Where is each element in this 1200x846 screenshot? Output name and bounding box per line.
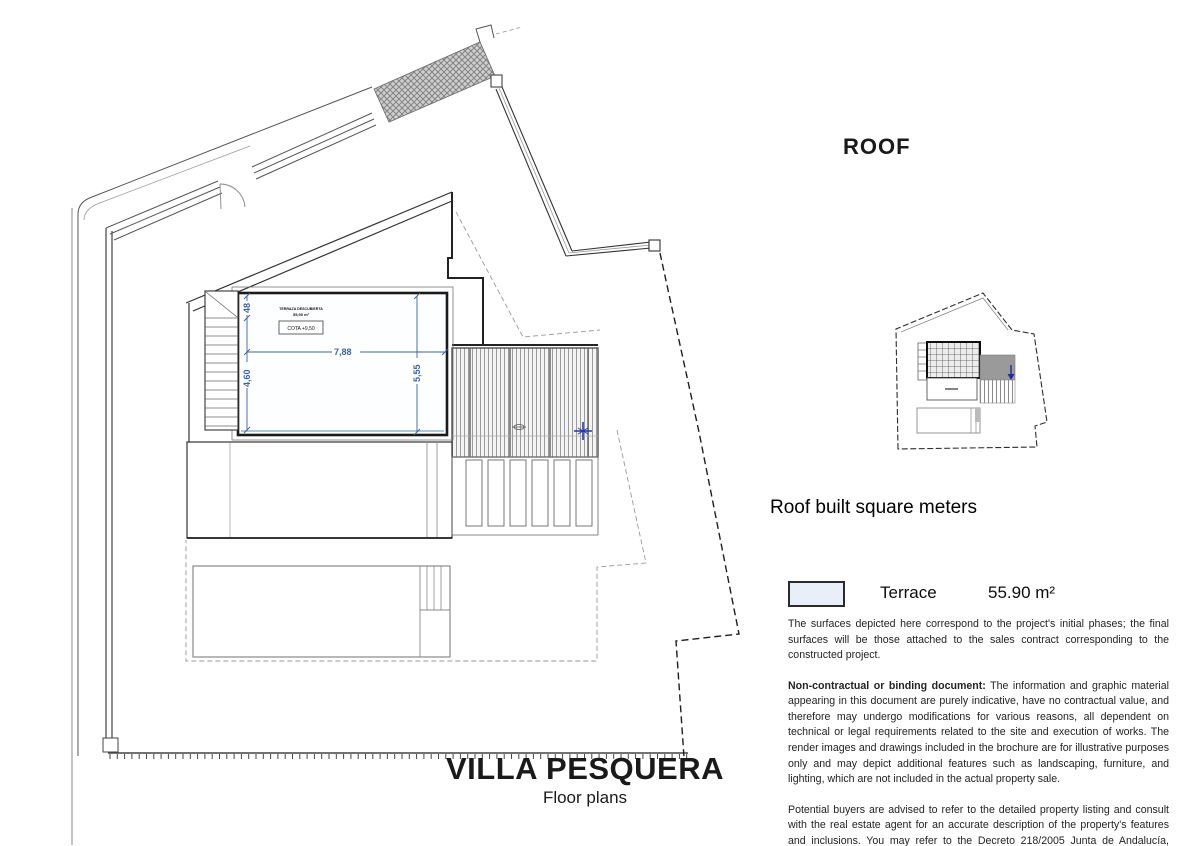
document-title: VILLA PESQUERA	[400, 751, 770, 787]
pergola-beams	[466, 460, 592, 526]
roof-plan-title: ROOF	[843, 134, 911, 160]
document-subtitle: Floor plans	[400, 788, 770, 808]
swimming-pool	[193, 566, 450, 657]
terrace-legend-label: Terrace	[880, 583, 937, 603]
disclaimer-text: The surfaces depicted here correspond to…	[788, 617, 1169, 846]
disclaimer-paragraph-3: Potential buyers are advised to refer to…	[788, 803, 1169, 846]
plot-boundary-dashed	[660, 253, 739, 757]
dim-height-left-top-label: 48	[242, 303, 252, 313]
terrace-legend-value: 55.90 m²	[988, 583, 1055, 603]
disclaimer-paragraph-2-bold: Non-contractual or binding document:	[788, 680, 986, 692]
staircase	[205, 291, 238, 430]
disclaimer-paragraph-2: Non-contractual or binding document: The…	[788, 679, 1169, 788]
terrace-annotation-cota: COTA +9,50	[287, 326, 315, 332]
driveway-hatched-band	[374, 25, 522, 122]
dim-width-label: 7,88	[334, 347, 352, 357]
terrace-legend-swatch	[788, 581, 845, 607]
terrace-annotation-line2: 55,90 m²	[293, 312, 310, 317]
dim-height-right-label: 5,55	[412, 364, 422, 382]
pergola-slatted-roof	[452, 345, 598, 457]
floor-plan-sheet: 7,88 5,55 4,60 48 TERRAZA DESCUBIERTA 55…	[0, 0, 1200, 846]
mini-roof-shapes	[917, 342, 1015, 433]
title-block: VILLA PESQUERA Floor plans	[400, 751, 770, 808]
main-roof-plan-drawing: 7,88 5,55 4,60 48 TERRAZA DESCUBIERTA 55…	[0, 0, 770, 846]
disclaimer-paragraph-2-rest: The information and graphic material app…	[788, 680, 1169, 785]
northeast-fence-wall	[496, 87, 660, 256]
disclaimer-paragraph-1: The surfaces depicted here correspond to…	[788, 617, 1169, 664]
dim-height-left-label: 4,60	[242, 369, 252, 387]
summary-heading: Roof built square meters	[770, 497, 977, 519]
mini-key-plan	[880, 280, 1080, 470]
terrace-annotation-line1: TERRAZA DESCUBIERTA	[279, 307, 323, 311]
